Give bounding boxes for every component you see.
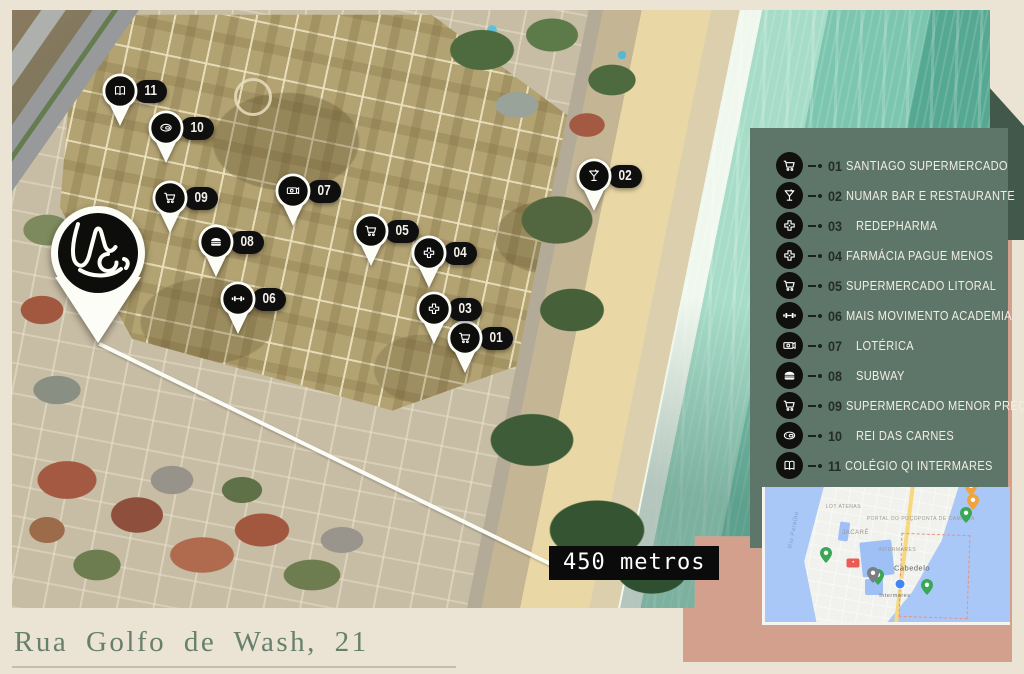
legend-number: 09 xyxy=(828,398,842,414)
pharmacy-icon xyxy=(776,212,803,239)
legend-connector xyxy=(808,194,822,198)
legend-item-08: 08SUBWAY xyxy=(776,362,1008,389)
lottery-icon xyxy=(776,332,803,359)
legend-connector xyxy=(808,254,822,258)
inset-pin-marker xyxy=(921,579,933,600)
distance-label: 450 metros xyxy=(549,546,719,580)
inset-pin-marker xyxy=(867,567,879,588)
cart-icon xyxy=(349,212,393,268)
legend-item-11: 11COLÉGIO QI INTERMARES xyxy=(776,452,1008,479)
legend-label: LOTÉRICA xyxy=(856,338,914,353)
legend-connector xyxy=(808,284,822,288)
sandwich-icon xyxy=(194,223,238,279)
legend-connector xyxy=(808,374,822,378)
legend-label: SUBWAY xyxy=(856,368,905,383)
map-pin-11: 11 xyxy=(98,72,142,128)
inset-place-label: Intermares xyxy=(879,593,910,599)
sandwich-icon xyxy=(776,362,803,389)
legend-number: 01 xyxy=(828,158,842,174)
pharmacy-icon xyxy=(412,290,456,346)
legend-connector xyxy=(808,224,822,228)
legend-connector xyxy=(808,314,822,318)
cocktail-icon xyxy=(776,182,803,209)
cart-icon xyxy=(776,392,803,419)
legend-label: SUPERMERCADO LITORAL xyxy=(846,278,996,293)
legend-item-02: 02NUMAR BAR E RESTAURANTE xyxy=(776,182,1008,209)
map-pin-02: 02 xyxy=(572,157,616,213)
legend-item-01: 01SANTIAGO SUPERMERCADO xyxy=(776,152,1008,179)
pharmacy-icon xyxy=(407,234,451,290)
legend-panel: 01SANTIAGO SUPERMERCADO02NUMAR BAR E RES… xyxy=(750,128,1008,548)
legend-connector xyxy=(808,404,822,408)
legend-label: MAIS MOVIMENTO ACADEMIA xyxy=(846,308,1012,323)
legend-number: 11 xyxy=(828,458,841,474)
pin-shape xyxy=(48,204,148,344)
legend-item-06: 06MAIS MOVIMENTO ACADEMIA xyxy=(776,302,1008,329)
footer-divider-line xyxy=(12,666,456,668)
legend-label: REI DAS CARNES xyxy=(856,428,954,443)
legend-number: 05 xyxy=(828,278,842,294)
legend-item-09: 09SUPERMERCADO MENOR PREÇO xyxy=(776,392,1008,419)
map-pin-03: 03 xyxy=(412,290,456,346)
book-icon xyxy=(776,452,803,479)
legend-label: FARMÁCIA PAGUE MENOS xyxy=(846,248,993,263)
dumbbell-icon xyxy=(776,302,803,329)
lottery-icon xyxy=(271,172,315,228)
roundabout xyxy=(234,78,272,116)
legend-number: 03 xyxy=(828,218,851,234)
legend-label: COLÉGIO QI INTERMARES xyxy=(845,458,993,473)
legend-number: 07 xyxy=(828,338,851,354)
map-pin-10: 10 xyxy=(144,109,188,165)
pharmacy-icon xyxy=(776,242,803,269)
legend-item-07: 07LOTÉRICA xyxy=(776,332,1008,359)
legend-label: NUMAR BAR E RESTAURANTE xyxy=(846,188,1015,203)
legend-item-10: 10REI DAS CARNES xyxy=(776,422,1008,449)
property-location-pin xyxy=(48,204,148,349)
legend-connector xyxy=(808,344,822,348)
legend-number: 02 xyxy=(828,188,842,204)
inset-place-label: PORTAL DO POÇO xyxy=(867,516,918,522)
inset-place-label: Cabedelo xyxy=(894,564,930,573)
map-pin-08: 08 xyxy=(194,223,238,279)
legend-connector xyxy=(808,434,822,438)
meat-icon xyxy=(776,422,803,449)
legend-item-04: 04FARMÁCIA PAGUE MENOS xyxy=(776,242,1008,269)
legend-number: 08 xyxy=(828,368,851,384)
legend-number: 10 xyxy=(828,428,851,444)
legend-label: SUPERMERCADO MENOR PREÇO xyxy=(846,398,1024,413)
legend-connector xyxy=(808,464,822,468)
inset-place-label: JACARÉ xyxy=(842,530,869,536)
map-pin-06: 06 xyxy=(216,280,260,336)
meat-icon xyxy=(144,109,188,165)
legend-item-05: 05SUPERMERCADO LITORAL xyxy=(776,272,1008,299)
inset-pin-marker xyxy=(967,494,979,515)
book-icon xyxy=(98,72,142,128)
cocktail-icon xyxy=(572,157,616,213)
legend-number: 06 xyxy=(828,308,842,324)
inset-square-marker: ▪ xyxy=(847,558,860,567)
map-pin-09: 09 xyxy=(148,179,192,235)
inset-pin-marker xyxy=(820,547,832,568)
inset-boundary-outline xyxy=(898,533,969,619)
cart-icon xyxy=(776,272,803,299)
dumbbell-icon xyxy=(216,280,260,336)
cart-icon xyxy=(776,152,803,179)
street-address: Rua Golfo de Wash, 21 xyxy=(14,626,369,659)
map-pin-07: 07 xyxy=(271,172,315,228)
map-pin-04: 04 xyxy=(407,234,451,290)
inset-place-label: LOT ATENAS xyxy=(826,504,861,510)
inset-dot-marker xyxy=(894,579,905,590)
inset-map: Rio ParaíbaLOT ATENASPORTAL DO POÇOJACAR… xyxy=(762,487,1010,625)
map-pin-05: 05 xyxy=(349,212,393,268)
inset-place-label: INTERMARES xyxy=(878,547,916,553)
location-map-flyer: 450 metros 0102030405060708091011 01SANT… xyxy=(0,0,1024,674)
legend-label: SANTIAGO SUPERMERCADO xyxy=(846,158,1008,173)
legend-connector xyxy=(808,164,822,168)
cart-icon xyxy=(148,179,192,235)
legend-label: REDEPHARMA xyxy=(856,218,937,233)
legend-item-03: 03REDEPHARMA xyxy=(776,212,1008,239)
legend-number: 04 xyxy=(828,248,842,264)
